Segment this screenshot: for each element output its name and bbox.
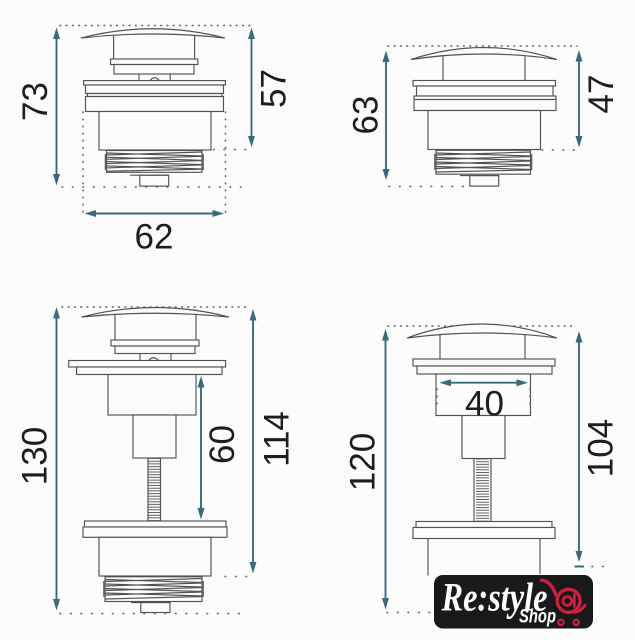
svg-text:73: 73 bbox=[16, 82, 55, 121]
svg-text:57: 57 bbox=[255, 69, 294, 108]
svg-text:130: 130 bbox=[16, 427, 55, 485]
svg-text:104: 104 bbox=[582, 419, 621, 477]
svg-text:114: 114 bbox=[258, 411, 297, 467]
svg-text:63: 63 bbox=[347, 96, 386, 135]
svg-text:120: 120 bbox=[344, 433, 383, 491]
svg-text:Shop: Shop bbox=[519, 607, 556, 628]
svg-text:60: 60 bbox=[203, 425, 242, 464]
svg-text:62: 62 bbox=[135, 218, 174, 257]
svg-text:40: 40 bbox=[465, 385, 504, 424]
svg-text:47: 47 bbox=[582, 75, 621, 114]
